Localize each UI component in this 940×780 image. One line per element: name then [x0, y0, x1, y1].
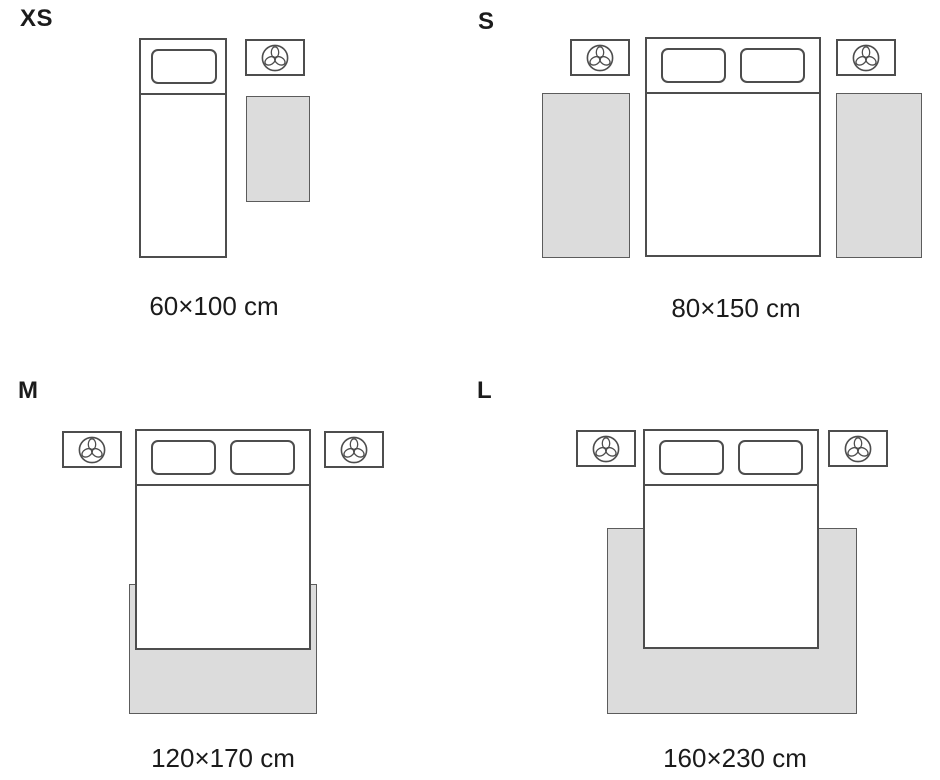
size-label: 160×230 cm — [615, 744, 855, 774]
quadrant-m: M — [0, 360, 470, 780]
double-bed — [135, 429, 311, 650]
pillow-left — [151, 440, 216, 475]
pillow-left — [661, 48, 726, 83]
bed-headboard-area — [141, 40, 225, 95]
nightstand-left — [576, 430, 636, 467]
pillow-right — [230, 440, 295, 475]
nightstand — [245, 39, 305, 76]
rug-bedside-right — [836, 93, 922, 258]
rug-xs — [246, 96, 310, 202]
bed-headboard-area — [137, 431, 309, 486]
double-bed — [643, 429, 819, 649]
lamp-top-view-icon — [591, 434, 621, 464]
bed-headboard-area — [647, 39, 819, 94]
pillow-left — [659, 440, 724, 475]
lamp-top-view-icon — [843, 434, 873, 464]
nightstand-left — [62, 431, 122, 468]
quadrant-letter: S — [478, 9, 495, 35]
pillow-right — [738, 440, 803, 475]
nightstand-left — [570, 39, 630, 76]
lamp-top-view-icon — [339, 435, 369, 465]
nightstand-right — [324, 431, 384, 468]
bed-headboard-area — [645, 431, 817, 486]
rug-size-guide: XS 60×100 cm S — [0, 0, 940, 780]
rug-bedside-left — [542, 93, 630, 258]
quadrant-s: S — [470, 0, 940, 360]
quadrant-letter: L — [477, 378, 492, 404]
lamp-top-view-icon — [851, 43, 881, 73]
double-bed — [645, 37, 821, 257]
size-label: 80×150 cm — [616, 294, 856, 324]
pillow — [151, 49, 217, 84]
size-label: 60×100 cm — [94, 292, 334, 322]
lamp-top-view-icon — [585, 43, 615, 73]
nightstand-right — [828, 430, 888, 467]
quadrant-xs: XS 60×100 cm — [0, 0, 470, 360]
size-label: 120×170 cm — [103, 744, 343, 774]
quadrant-l: L — [470, 360, 940, 780]
lamp-top-view-icon — [77, 435, 107, 465]
nightstand-right — [836, 39, 896, 76]
lamp-top-view-icon — [260, 43, 290, 73]
single-bed — [139, 38, 227, 258]
pillow-right — [740, 48, 805, 83]
quadrant-letter: XS — [20, 6, 53, 32]
quadrant-letter: M — [18, 378, 39, 404]
